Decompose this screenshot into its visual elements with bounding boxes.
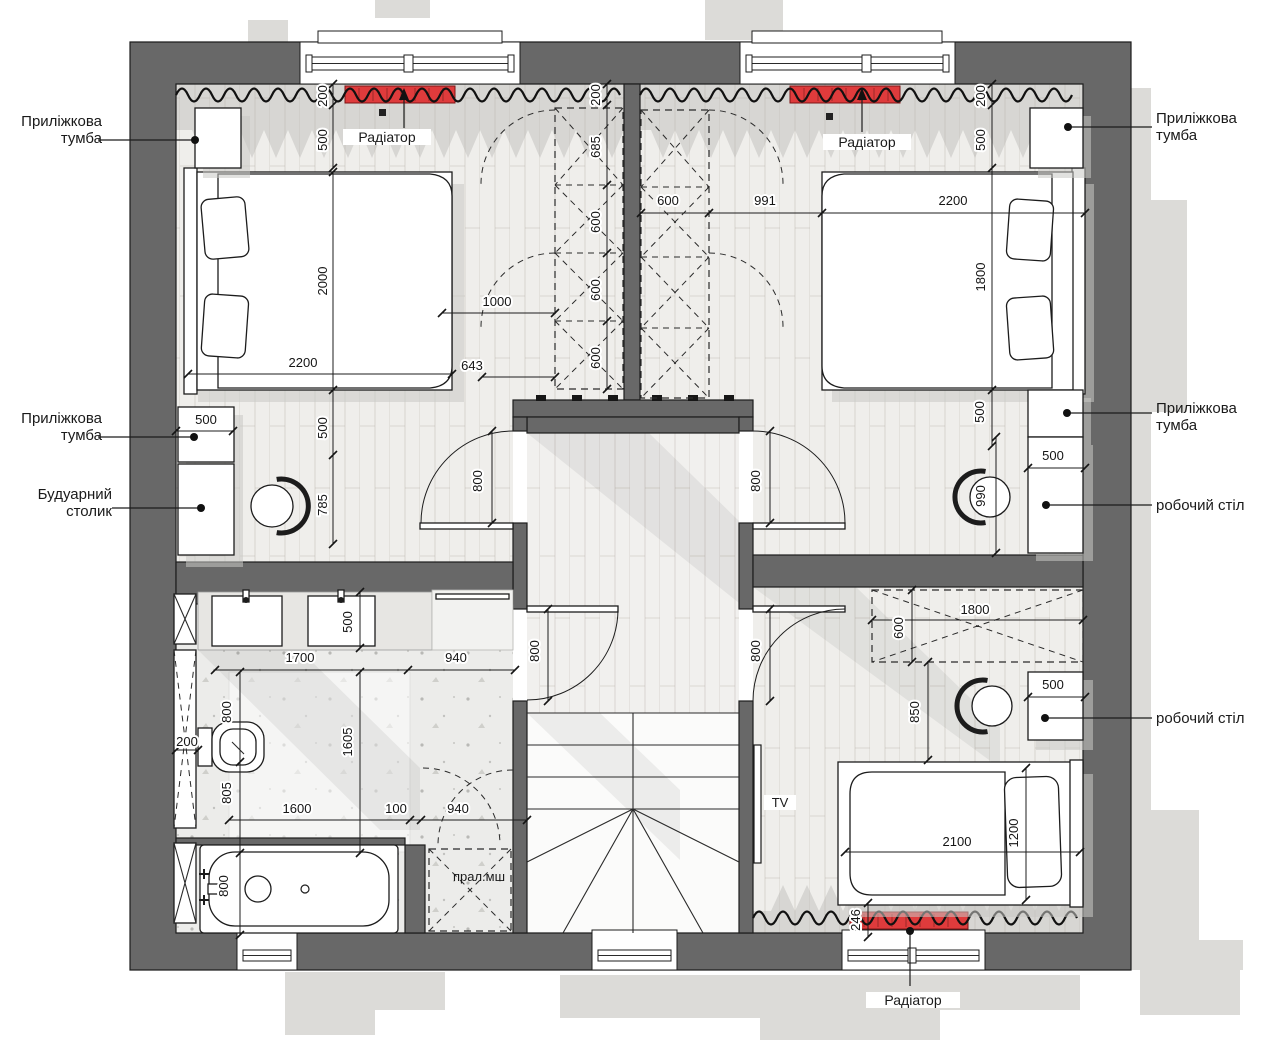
- dimension-label: 850: [907, 701, 922, 723]
- thermostat-icon: [379, 109, 386, 116]
- bed-headboard: [184, 168, 197, 394]
- dimension-label: 800: [470, 470, 485, 492]
- hall-west-wall: [513, 523, 527, 609]
- bed-blanket: [218, 174, 452, 388]
- bathtub-partition: [176, 838, 405, 845]
- dimension-label: 500: [315, 417, 330, 439]
- hall-north-wall-step: [527, 417, 739, 433]
- tv-unit: [754, 745, 761, 863]
- dimension-label: 2000: [315, 267, 330, 296]
- window-top-right: [740, 31, 955, 84]
- thermostat-icon: [826, 113, 833, 120]
- window-bottom-right: [842, 930, 985, 970]
- toilet-tank: [198, 728, 212, 766]
- hall-north-wall: [513, 400, 753, 417]
- dimension-label: 600: [657, 193, 679, 208]
- stair-east-wall: [739, 701, 753, 933]
- bedroom-br-north-wall: [753, 555, 1083, 587]
- dimension-label: 600: [891, 617, 906, 639]
- dimension-label: 600: [588, 211, 603, 233]
- callout-work-desk-2: робочий стіл: [1156, 710, 1276, 727]
- dimension-label: 500: [340, 611, 355, 633]
- callout-line: робочий стіл: [1156, 710, 1244, 727]
- dimension-label: 2200: [939, 193, 968, 208]
- dimension-label: 1700: [286, 650, 315, 665]
- pillow: [201, 294, 249, 359]
- dimension-label: 100: [385, 801, 407, 816]
- callout-line: тумба: [61, 427, 102, 444]
- partition-between-top-bedrooms: [624, 84, 640, 400]
- washer-nook-wall: [405, 845, 425, 933]
- towel-rail: [436, 594, 509, 599]
- callout-bedside-table-top-right: Приліжкова тумба: [1156, 110, 1268, 144]
- dimension-label: 940: [447, 801, 469, 816]
- callout-line: Приліжкова: [21, 410, 102, 427]
- callout-line: робочий стіл: [1156, 497, 1244, 514]
- dimension-label: 940: [445, 650, 467, 665]
- dimension-label: 2100: [943, 834, 972, 849]
- dimension-label: 1605: [340, 728, 355, 757]
- dimension-label: 1600: [283, 801, 312, 816]
- dimension-label: 200: [176, 734, 198, 749]
- dimension-label: 685: [588, 136, 603, 158]
- dimension-label: 800: [527, 640, 542, 662]
- chair: [972, 686, 1012, 726]
- dimension-label: 500: [973, 129, 988, 151]
- radiator-label-bottom: Радіатор: [866, 992, 960, 1008]
- chair: [251, 485, 293, 527]
- pillow: [1006, 199, 1054, 262]
- door-leaf: [420, 523, 513, 529]
- callout-line: Приліжкова: [1156, 400, 1237, 417]
- callout-work-desk-1: робочий стіл: [1156, 497, 1276, 514]
- hall-east-wall: [739, 523, 753, 609]
- dimension-label: 785: [315, 494, 330, 516]
- bed-headboard: [1070, 760, 1083, 907]
- dimension-label: 800: [748, 470, 763, 492]
- dimension-label: 805: [219, 782, 234, 804]
- callout-line: Приліжкова: [21, 113, 102, 130]
- window-top-left: [300, 31, 520, 84]
- dimension-label: 800: [219, 701, 234, 723]
- dimension-label: 800: [748, 640, 763, 662]
- dimension-label: 1800: [973, 263, 988, 292]
- dimension-label: 200: [315, 85, 330, 107]
- stair-west-wall: [513, 701, 527, 933]
- dimension-label: 500: [315, 129, 330, 151]
- dimension-label: 1800: [961, 602, 990, 617]
- callout-line: столик: [66, 503, 112, 520]
- bed-blanket: [850, 772, 1005, 895]
- dimension-label: 246: [848, 909, 863, 931]
- bedside-table: [195, 108, 241, 168]
- bed-headboard: [1072, 168, 1085, 394]
- tv-label: TV: [764, 795, 796, 810]
- dimension-label: 600: [588, 279, 603, 301]
- window-bottom-middle: [592, 930, 677, 970]
- boudoir-table: [178, 464, 234, 555]
- bedside-table: [1030, 108, 1083, 168]
- washing-machine-label: прал.мш: [438, 869, 520, 884]
- door-leaf: [527, 606, 618, 612]
- bathtub-drain: [245, 876, 271, 902]
- callout-line: тумба: [61, 130, 102, 147]
- radiator-label-top-left: Радіатор: [343, 129, 431, 145]
- callout-line: тумба: [1156, 417, 1197, 434]
- dimension-label: 600: [588, 347, 603, 369]
- dimension-label: 500: [1042, 677, 1064, 692]
- dimension-label: 500: [1042, 448, 1064, 463]
- dimension-label: 800: [216, 875, 231, 897]
- dimension-label: 200: [973, 85, 988, 107]
- pillow: [200, 196, 249, 260]
- sink: [212, 596, 282, 646]
- callout-line: Будуарний: [38, 486, 112, 503]
- dimension-label: 500: [195, 412, 217, 427]
- callout-bedside-table-mid-left: Приліжкова тумба: [10, 410, 102, 444]
- callout-boudoir-table: Будуарний столик: [20, 486, 112, 520]
- dimension-label: 990: [973, 485, 988, 507]
- window-bottom-left: [237, 930, 297, 970]
- dimension-label: 643: [461, 358, 483, 373]
- floor-plan-drawing: 200 500 2000 2200 500 500 785 1000 643 2…: [0, 0, 1276, 1051]
- dimension-label: 500: [972, 401, 987, 423]
- radiator-label-top-right: Радіатор: [823, 134, 911, 150]
- door-leaf: [753, 523, 845, 529]
- door-leaf: [753, 606, 845, 612]
- callout-line: Приліжкова: [1156, 110, 1237, 127]
- callout-line: тумба: [1156, 127, 1197, 144]
- callout-bedside-table-mid-right: Приліжкова тумба: [1156, 400, 1268, 434]
- dimension-label: 1200: [1006, 819, 1021, 848]
- floor-plan: 200 500 2000 2200 500 500 785 1000 643 2…: [0, 0, 1276, 1051]
- dimension-label: 2200: [289, 355, 318, 370]
- dimension-label: 991: [754, 193, 776, 208]
- dimension-label: 1000: [483, 294, 512, 309]
- pillow: [1006, 296, 1054, 361]
- dimension-label: 200: [588, 84, 603, 106]
- callout-bedside-table-top-left: Приліжкова тумба: [10, 113, 102, 147]
